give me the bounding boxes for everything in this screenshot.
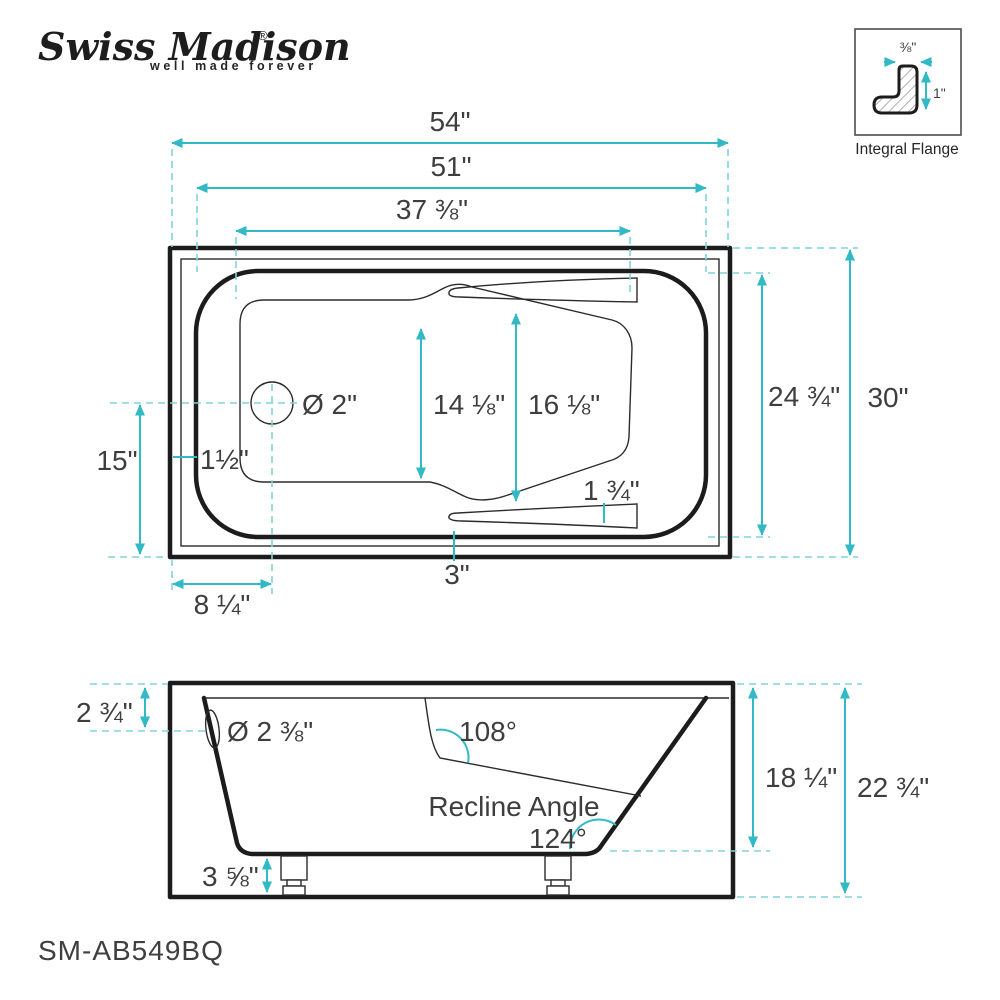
top-view: 54" 51" 37 ⅜" 30" 24 ¾" [96, 106, 908, 620]
spec-sheet: Swiss Madison ® well made forever ⅜" 1" … [0, 0, 1000, 1000]
flange-detail: ⅜" 1" Integral Flange [855, 29, 961, 158]
dim-drain-from-end: 8 ¼" [172, 384, 272, 620]
dim-label-3-5-8: 3 ⅝" [202, 861, 259, 892]
dim-deck-to-overflow: 2 ¾" [76, 684, 205, 731]
foot-block [281, 856, 307, 880]
dim-label-18-1-4: 18 ¼" [765, 762, 837, 793]
dim-label-overflow: Ø 2 ⅜" [227, 716, 313, 747]
registered-mark-icon: ® [258, 28, 268, 43]
dim-label-3: 3" [444, 559, 470, 590]
dim-label-2-3-4: 2 ¾" [76, 697, 133, 728]
tub-foot-left [281, 856, 307, 895]
dim-leg-height: 3 ⅝" [202, 859, 267, 892]
flange-detail-title: Integral Flange [855, 141, 958, 158]
foot-stem [287, 880, 301, 886]
dim-skirt-width: 3" [444, 531, 470, 590]
dim-label-124: 124° [529, 823, 587, 854]
armrest-top [449, 278, 637, 302]
dim-label-1-1-2: 1½" [200, 444, 249, 475]
tub-foot-right [545, 856, 571, 895]
foot-base [547, 886, 569, 895]
armrest-bottom [449, 504, 637, 528]
dim-label-108: 108° [459, 716, 517, 747]
foot-stem [551, 880, 565, 886]
dim-label-24-3-4: 24 ¾" [768, 381, 840, 412]
dim-basin-width-foot: 14 ⅛" [421, 329, 505, 478]
dim-label-1-3-4: 1 ¾" [583, 475, 640, 506]
dim-basin-depth: 18 ¼" [610, 684, 862, 851]
flange-height-label: 1" [933, 85, 946, 101]
dim-label-drain: Ø 2" [302, 389, 357, 420]
dim-basin-width-back: 16 ⅛" [516, 314, 600, 501]
brand-tagline: well made forever [149, 59, 317, 73]
dim-label-37-3-8: 37 ⅜" [396, 194, 468, 225]
dim-label-54: 54" [429, 106, 470, 137]
dim-label-22-3-4: 22 ¾" [857, 772, 929, 803]
spec-drawing: Swiss Madison ® well made forever ⅜" 1" … [0, 0, 1000, 1000]
dim-label-51: 51" [430, 151, 471, 182]
seat-back-line [425, 698, 641, 796]
foot-base [283, 886, 305, 895]
dim-label-30: 30" [867, 382, 908, 413]
flange-width-label: ⅜" [900, 39, 917, 55]
dim-label-15: 15" [96, 445, 137, 476]
dim-label-8-1-4: 8 ¼" [194, 589, 251, 620]
side-view: 2 ¾" Ø 2 ⅜" 108° Recline Angle 124° 3 ⅝"… [76, 683, 929, 897]
recline-angle-title: Recline Angle [428, 791, 599, 822]
dim-label-16-1-8: 16 ⅛" [528, 389, 600, 420]
model-number: SM-AB549BQ [38, 935, 224, 966]
brand-logo: Swiss Madison ® well made forever [38, 24, 351, 73]
dim-armrest-width: 1 ¾" [583, 475, 640, 523]
dim-label-14-1-8: 14 ⅛" [433, 389, 505, 420]
dim-rim-offset: 1½" [173, 444, 249, 475]
foot-block [545, 856, 571, 880]
